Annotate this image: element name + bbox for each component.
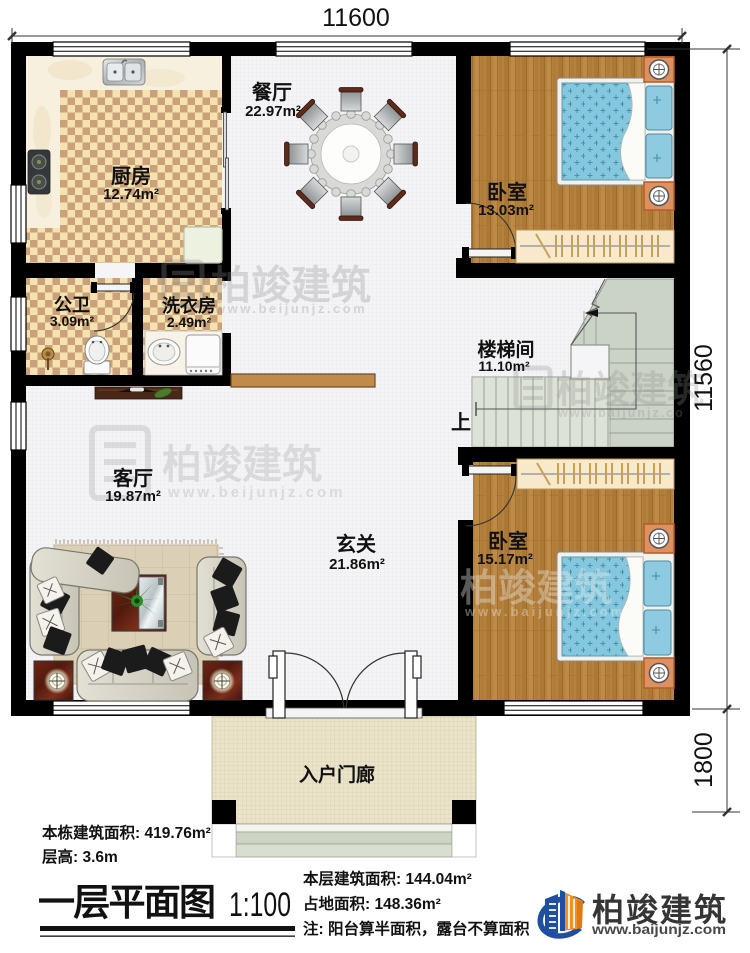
svg-text:12.74m²: 12.74m² (103, 186, 159, 203)
svg-text:www.baijunjz.com: www.baijunjz.com (464, 604, 625, 619)
svg-text:www.baijunjz.co: www.baijunjz.co (557, 406, 685, 420)
svg-text:注: 阳台算半面积，露台不算面积: 注: 阳台算半面积，露台不算面积 (303, 919, 530, 938)
svg-text:3.09m²: 3.09m² (50, 313, 95, 329)
svg-text:一层平面图: 一层平面图 (38, 882, 216, 923)
svg-text:19.87m²: 19.87m² (105, 488, 161, 505)
svg-text:2.49m²: 2.49m² (167, 314, 212, 330)
svg-text:13.03m²: 13.03m² (478, 202, 534, 219)
svg-text:客厅: 客厅 (112, 466, 153, 490)
svg-text:上: 上 (451, 411, 471, 434)
svg-text:www.baijunjz.com: www.baijunjz.com (591, 921, 726, 937)
svg-text:www.beijunjz.com: www.beijunjz.com (214, 301, 367, 316)
svg-text:22.97m²: 22.97m² (245, 103, 301, 120)
svg-text:层高: 3.6m: 层高: 3.6m (42, 847, 118, 866)
svg-text:本层建筑面积: 144.04m²: 本层建筑面积: 144.04m² (303, 869, 472, 888)
svg-text:11560: 11560 (690, 344, 718, 412)
svg-text:厨房: 厨房 (111, 164, 151, 188)
svg-text:占地面积: 148.36m²: 占地面积: 148.36m² (303, 894, 441, 913)
svg-text:公卫: 公卫 (54, 295, 90, 315)
svg-text:15.17m²: 15.17m² (477, 551, 533, 568)
svg-text:柏竣建筑: 柏竣建筑 (556, 368, 704, 410)
svg-text:11.10m²: 11.10m² (478, 358, 530, 374)
svg-text:www.beijunjz.com: www.beijunjz.com (167, 484, 345, 501)
svg-text:柏竣建筑: 柏竣建筑 (162, 443, 322, 487)
svg-text:卧室: 卧室 (487, 180, 527, 204)
svg-text:1:100: 1:100 (229, 886, 291, 924)
svg-text:本栋建筑面积: 419.76m²: 本栋建筑面积: 419.76m² (42, 823, 211, 842)
svg-text:入户门廊: 入户门廊 (299, 763, 375, 786)
svg-text:玄关: 玄关 (336, 532, 376, 556)
svg-text:11600: 11600 (322, 4, 390, 32)
svg-text:1800: 1800 (690, 732, 718, 788)
svg-text:餐厅: 餐厅 (252, 80, 292, 104)
svg-text:21.86m²: 21.86m² (329, 556, 385, 573)
svg-text:卧室: 卧室 (488, 529, 528, 553)
svg-text:洗衣房: 洗衣房 (162, 295, 216, 316)
